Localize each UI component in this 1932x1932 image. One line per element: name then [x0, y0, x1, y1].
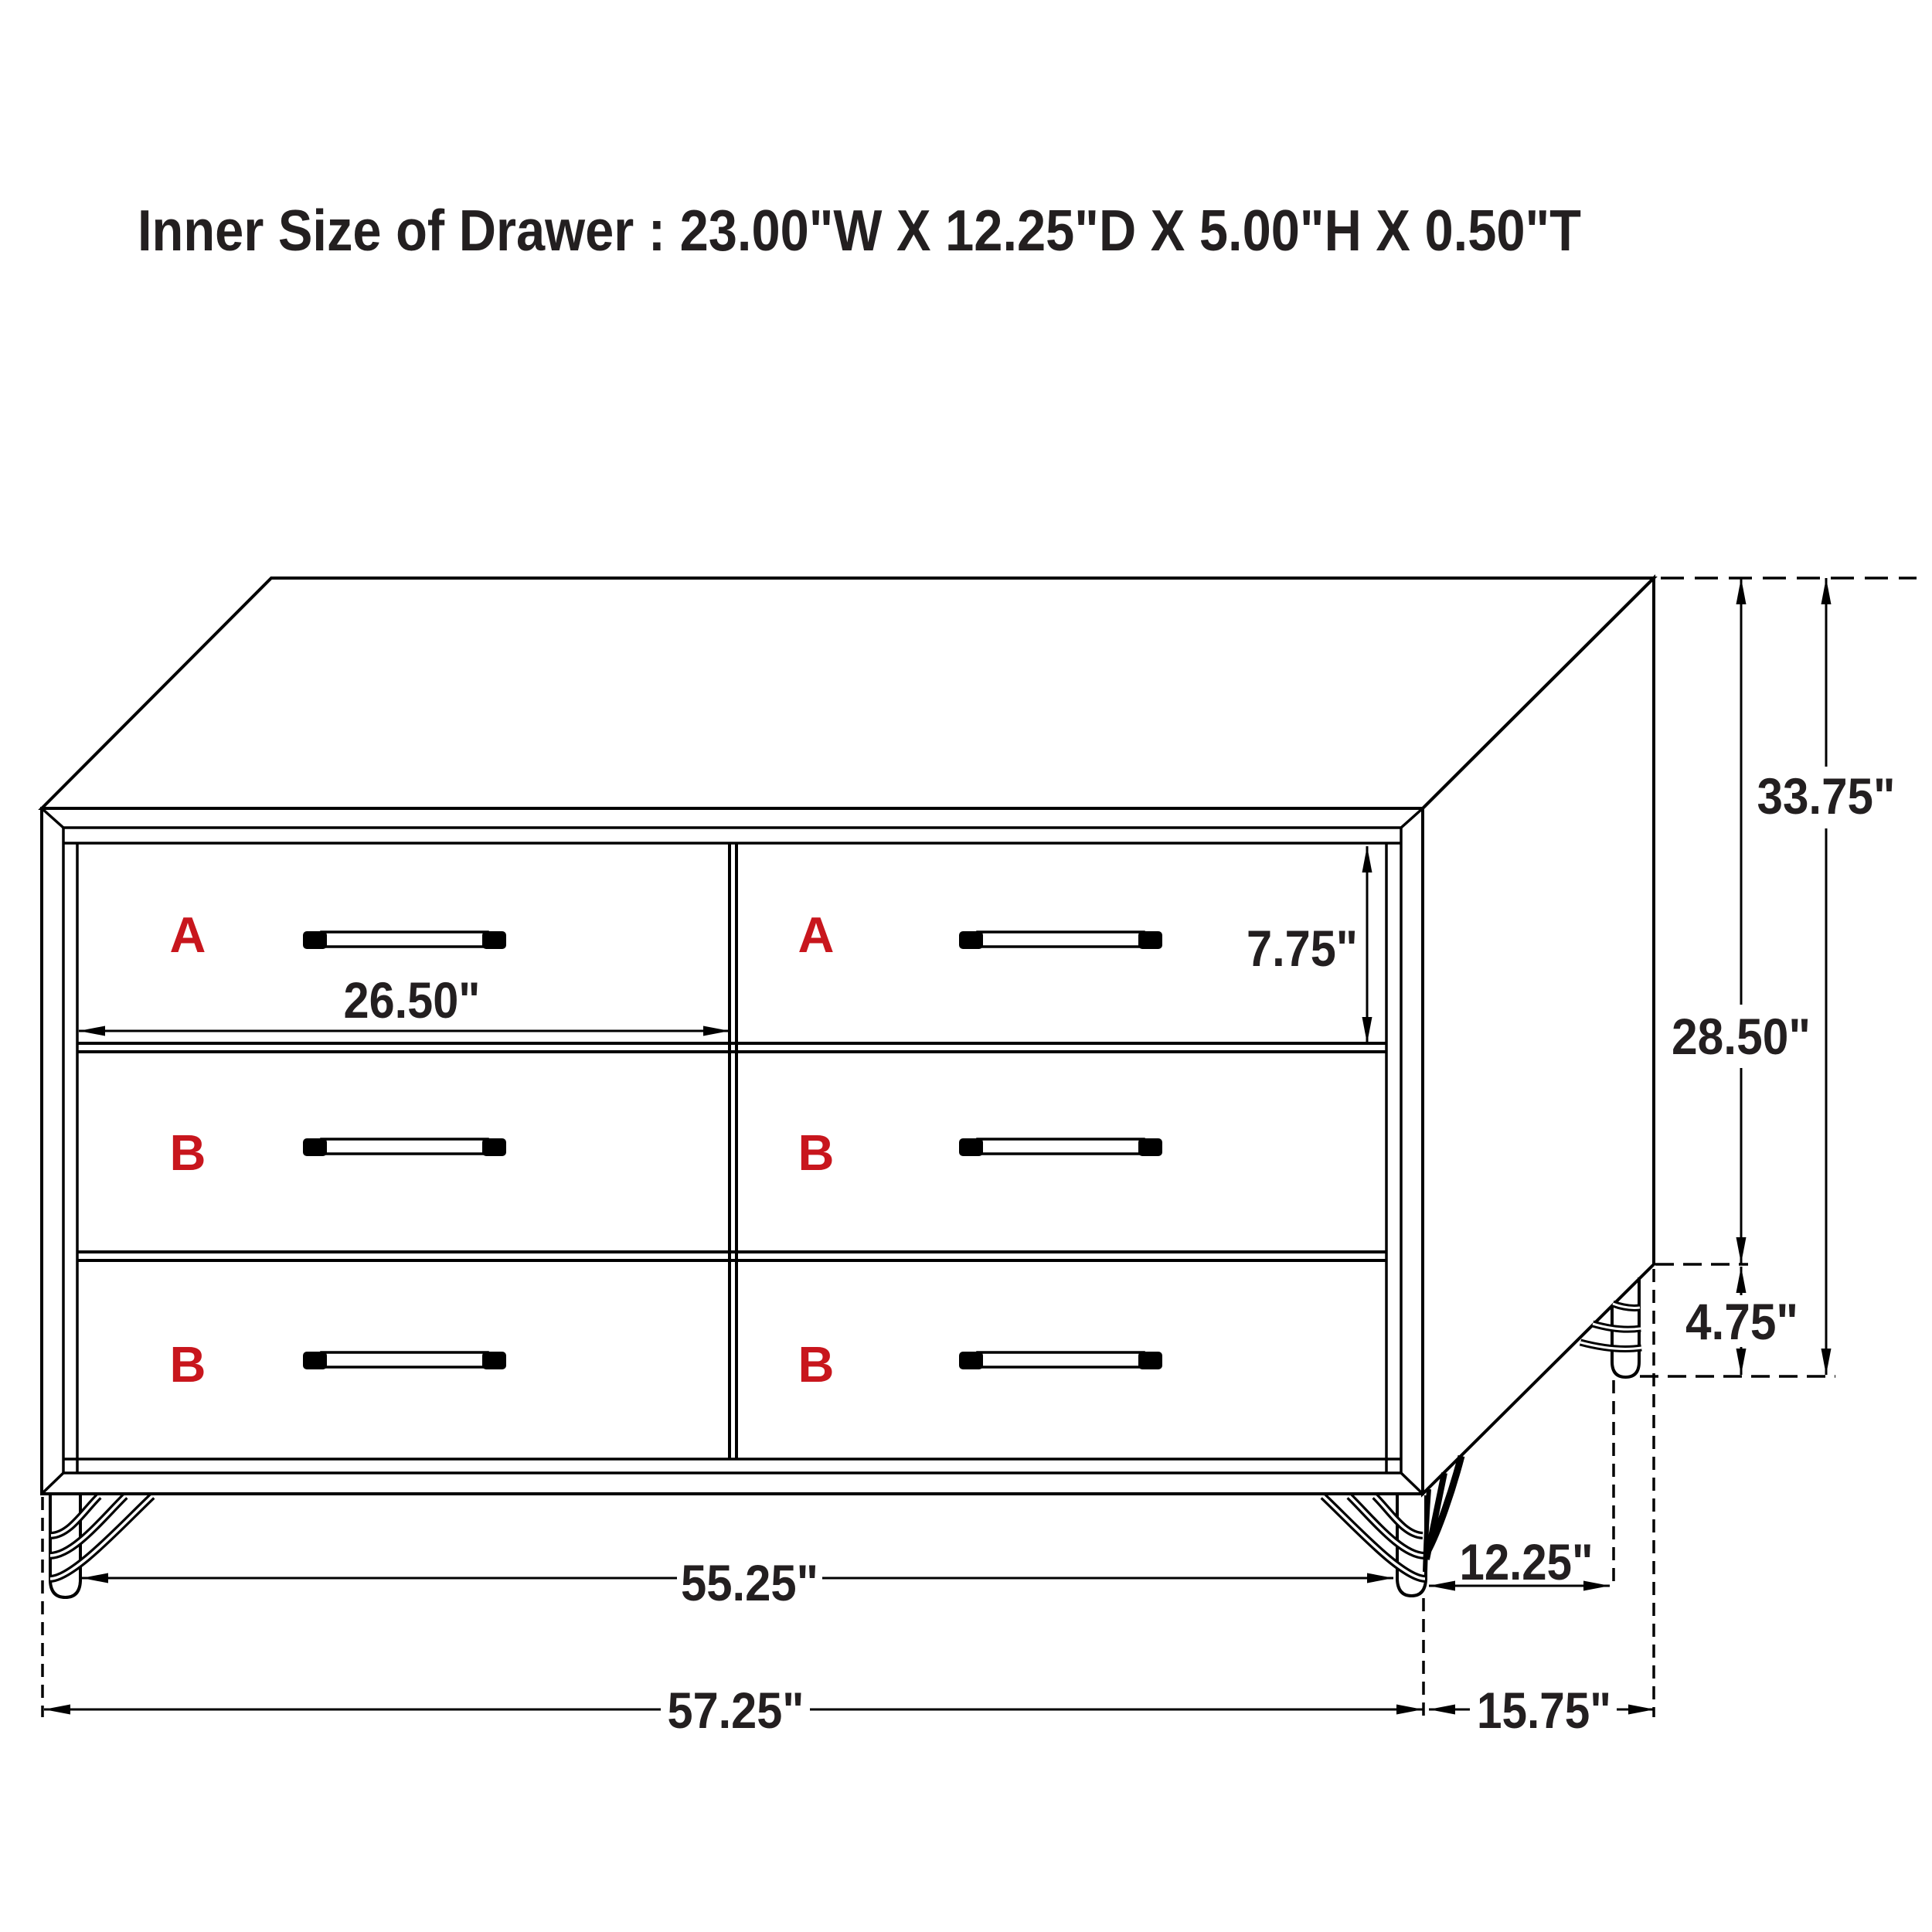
svg-text:55.25": 55.25"	[681, 1554, 818, 1611]
svg-text:B: B	[170, 1124, 206, 1181]
svg-text:B: B	[798, 1124, 835, 1181]
svg-text:57.25": 57.25"	[668, 1682, 804, 1739]
svg-text:A: A	[170, 906, 206, 963]
svg-text:12.25": 12.25"	[1460, 1533, 1594, 1590]
svg-text:26.50": 26.50"	[344, 971, 481, 1029]
svg-text:Inner Size of Drawer : 23.00"W: Inner Size of Drawer : 23.00"W X 12.25"D…	[138, 198, 1581, 263]
svg-text:B: B	[170, 1336, 206, 1393]
svg-text:B: B	[798, 1336, 835, 1393]
svg-text:28.50": 28.50"	[1672, 1008, 1811, 1065]
svg-text:7.75": 7.75"	[1247, 920, 1358, 977]
svg-text:4.75": 4.75"	[1685, 1293, 1798, 1350]
svg-text:33.75": 33.75"	[1757, 767, 1896, 825]
svg-text:15.75": 15.75"	[1477, 1682, 1611, 1739]
svg-text:A: A	[798, 906, 835, 963]
